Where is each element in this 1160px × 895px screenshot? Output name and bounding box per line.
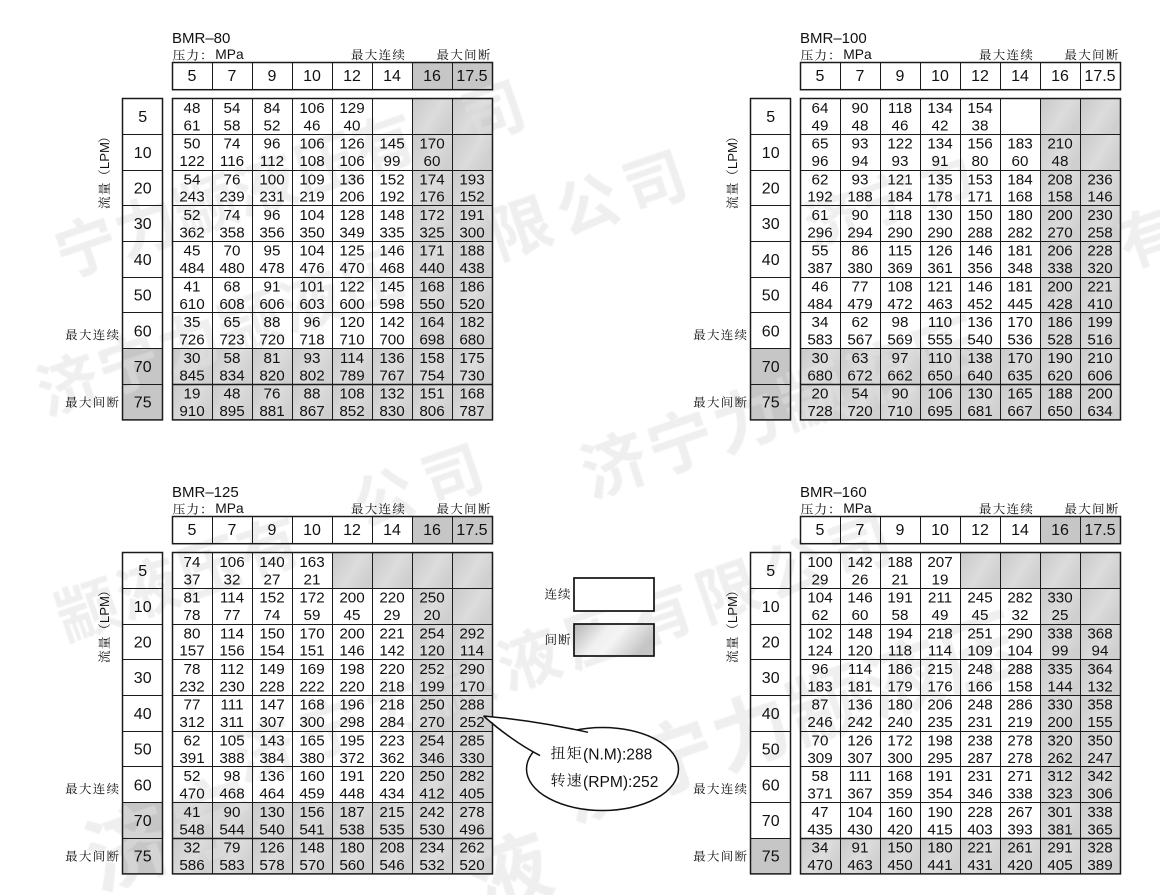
svg-text:540: 540 (259, 821, 284, 838)
svg-text:230: 230 (219, 678, 244, 695)
svg-text:288: 288 (459, 697, 484, 714)
svg-text:290: 290 (927, 224, 952, 241)
svg-text:62: 62 (852, 314, 869, 331)
svg-text:720: 720 (259, 332, 284, 349)
svg-text:222: 222 (299, 678, 324, 695)
svg-text:662: 662 (887, 367, 912, 384)
svg-text:211: 211 (928, 590, 952, 607)
svg-text:111: 111 (220, 697, 243, 714)
svg-text:10: 10 (762, 599, 780, 616)
svg-text:40: 40 (762, 706, 780, 723)
svg-text:168: 168 (887, 768, 912, 785)
svg-text:578: 578 (259, 857, 284, 874)
svg-text:158: 158 (1007, 678, 1032, 695)
svg-text:27: 27 (264, 571, 281, 588)
svg-text:754: 754 (419, 367, 444, 384)
svg-text:271: 271 (1007, 768, 1032, 785)
svg-text:359: 359 (887, 786, 912, 803)
svg-text:391: 391 (179, 750, 204, 767)
svg-text:468: 468 (219, 786, 244, 803)
svg-text:30: 30 (762, 670, 780, 687)
svg-text:606: 606 (1087, 367, 1112, 384)
svg-text:412: 412 (419, 786, 444, 803)
svg-text:14: 14 (383, 68, 401, 85)
svg-text:146: 146 (967, 243, 992, 260)
svg-text:105: 105 (219, 733, 244, 750)
svg-text:181: 181 (847, 678, 872, 695)
svg-text:63: 63 (852, 350, 869, 367)
svg-text:146: 146 (339, 643, 364, 660)
svg-text:180: 180 (1007, 207, 1032, 224)
svg-text:188: 188 (887, 554, 912, 571)
svg-text:484: 484 (807, 296, 832, 313)
svg-text:172: 172 (419, 207, 444, 224)
svg-text:16: 16 (1051, 68, 1069, 85)
svg-text:122: 122 (339, 278, 364, 295)
svg-text:100: 100 (807, 554, 832, 571)
svg-text:LPM: LPM (725, 142, 740, 169)
svg-text:231: 231 (967, 768, 992, 785)
svg-text:459: 459 (299, 786, 324, 803)
svg-text:234: 234 (419, 840, 444, 857)
svg-text:215: 215 (927, 661, 952, 678)
svg-text:528: 528 (1047, 332, 1072, 349)
svg-text:520: 520 (459, 857, 484, 874)
svg-text:61: 61 (812, 207, 829, 224)
svg-text:405: 405 (1047, 857, 1072, 874)
svg-text:200: 200 (1047, 278, 1072, 295)
svg-text:70: 70 (812, 733, 829, 750)
svg-text:90: 90 (892, 386, 909, 403)
svg-text:129: 129 (339, 100, 364, 117)
svg-text:149: 149 (259, 661, 284, 678)
svg-text:70: 70 (134, 813, 152, 830)
svg-text:30: 30 (762, 216, 780, 233)
svg-text:726: 726 (179, 332, 204, 349)
svg-text:538: 538 (339, 821, 364, 838)
svg-text:235: 235 (927, 714, 952, 731)
svg-text:218: 218 (379, 678, 404, 695)
svg-text:428: 428 (1047, 296, 1072, 313)
svg-text:30: 30 (134, 670, 152, 687)
svg-text:60: 60 (134, 323, 152, 340)
svg-text:560: 560 (339, 857, 364, 874)
svg-text:59: 59 (304, 607, 321, 624)
svg-text:288: 288 (1007, 661, 1032, 678)
svg-text:301: 301 (1047, 804, 1072, 821)
svg-text:50: 50 (134, 742, 152, 759)
svg-text:108: 108 (299, 153, 324, 170)
svg-text:178: 178 (927, 189, 952, 206)
svg-text:640: 640 (967, 367, 992, 384)
svg-text:544: 544 (219, 821, 244, 838)
svg-text:206: 206 (1047, 243, 1072, 260)
svg-text:7: 7 (856, 522, 865, 539)
svg-text:381: 381 (1047, 821, 1072, 838)
svg-text:307: 307 (847, 750, 872, 767)
svg-text:680: 680 (807, 367, 832, 384)
svg-text:245: 245 (967, 590, 992, 607)
svg-text:700: 700 (379, 332, 404, 349)
svg-text:163: 163 (299, 554, 324, 571)
svg-text:298: 298 (339, 714, 364, 731)
svg-text:81: 81 (184, 590, 201, 607)
svg-text:58: 58 (892, 607, 909, 624)
svg-text:32: 32 (1012, 607, 1029, 624)
svg-text:MPa: MPa (215, 47, 244, 62)
svg-text:5: 5 (188, 68, 197, 85)
svg-text:180: 180 (339, 840, 364, 857)
svg-text:34: 34 (812, 314, 829, 331)
svg-text:142: 142 (379, 314, 404, 331)
svg-text:182: 182 (459, 314, 484, 331)
svg-text:37: 37 (184, 571, 201, 588)
svg-text:367: 367 (847, 786, 872, 803)
svg-text:153: 153 (967, 171, 992, 188)
svg-text:362: 362 (179, 224, 204, 241)
svg-text:311: 311 (220, 714, 244, 731)
svg-text:114: 114 (928, 643, 952, 660)
svg-text:206: 206 (339, 189, 364, 206)
svg-text:106: 106 (299, 136, 324, 153)
svg-text:9: 9 (896, 68, 905, 85)
svg-text:41: 41 (184, 804, 201, 821)
svg-text:567: 567 (847, 332, 872, 349)
svg-text:536: 536 (1007, 332, 1032, 349)
svg-text:126: 126 (847, 733, 872, 750)
svg-text:136: 136 (259, 768, 284, 785)
svg-text:21: 21 (892, 571, 909, 588)
svg-text:7: 7 (228, 68, 237, 85)
svg-text:681: 681 (967, 403, 992, 420)
svg-text:164: 164 (419, 314, 444, 331)
svg-text:120: 120 (847, 643, 872, 660)
svg-text:93: 93 (892, 153, 909, 170)
svg-text:12: 12 (971, 68, 989, 85)
svg-text:52: 52 (184, 768, 201, 785)
svg-text:136: 136 (967, 314, 992, 331)
svg-text:48: 48 (224, 386, 241, 403)
svg-text:52: 52 (264, 117, 281, 134)
svg-text:126: 126 (339, 136, 364, 153)
svg-text:698: 698 (419, 332, 444, 349)
svg-text:358: 358 (1087, 697, 1112, 714)
svg-text:187: 187 (339, 804, 364, 821)
svg-text:74: 74 (224, 136, 241, 153)
svg-text:586: 586 (179, 857, 204, 874)
svg-text:168: 168 (1007, 189, 1032, 206)
svg-text:300: 300 (887, 750, 912, 767)
svg-text:5: 5 (766, 563, 775, 580)
svg-text:184: 184 (1007, 171, 1032, 188)
svg-text:49: 49 (812, 117, 829, 134)
svg-text:12: 12 (343, 68, 361, 85)
svg-text:52: 52 (184, 207, 201, 224)
svg-text:104: 104 (299, 207, 324, 224)
svg-text:372: 372 (339, 750, 364, 767)
svg-text:569: 569 (887, 332, 912, 349)
svg-text:330: 330 (1047, 590, 1072, 607)
svg-text:200: 200 (339, 625, 364, 642)
svg-text:166: 166 (967, 678, 992, 695)
svg-text:60: 60 (424, 153, 441, 170)
svg-text:132: 132 (1087, 678, 1112, 695)
svg-text:10: 10 (931, 68, 949, 85)
svg-text:126: 126 (927, 243, 952, 260)
svg-text:114: 114 (460, 643, 484, 660)
svg-text:181: 181 (1007, 243, 1032, 260)
svg-text:335: 335 (379, 224, 404, 241)
svg-text:252: 252 (459, 714, 484, 731)
svg-text:240: 240 (887, 714, 912, 731)
svg-text:20: 20 (762, 181, 780, 198)
svg-text:181: 181 (1007, 278, 1032, 295)
svg-text:555: 555 (927, 332, 952, 349)
svg-text:267: 267 (1007, 804, 1032, 821)
svg-text:96: 96 (264, 207, 281, 224)
svg-text:330: 330 (1047, 697, 1072, 714)
svg-text:380: 380 (299, 750, 324, 767)
svg-text:118: 118 (888, 100, 912, 117)
svg-text:448: 448 (339, 786, 364, 803)
svg-text:122: 122 (887, 136, 912, 153)
svg-text:170: 170 (419, 136, 444, 153)
svg-text:96: 96 (812, 661, 829, 678)
svg-text:767: 767 (379, 367, 404, 384)
svg-text:5: 5 (138, 563, 147, 580)
svg-text:252: 252 (419, 661, 444, 678)
svg-text:93: 93 (852, 136, 869, 153)
svg-text:199: 199 (419, 678, 444, 695)
svg-text:96: 96 (812, 153, 829, 170)
svg-text:74: 74 (224, 207, 241, 224)
svg-text:219: 219 (299, 189, 324, 206)
svg-text:60: 60 (762, 777, 780, 794)
svg-text:312: 312 (1047, 768, 1072, 785)
svg-text:169: 169 (299, 661, 324, 678)
svg-text:156: 156 (219, 643, 244, 660)
svg-text:231: 231 (259, 189, 284, 206)
svg-text:70: 70 (134, 359, 152, 376)
svg-text:102: 102 (807, 625, 832, 642)
svg-text:710: 710 (339, 332, 364, 349)
svg-text:723: 723 (219, 332, 244, 349)
svg-text:420: 420 (1007, 857, 1032, 874)
svg-text:77: 77 (852, 278, 869, 295)
svg-text:598: 598 (379, 296, 404, 313)
svg-text:48: 48 (852, 117, 869, 134)
svg-text:434: 434 (379, 786, 404, 803)
svg-text:323: 323 (1047, 786, 1072, 803)
svg-text:151: 151 (299, 643, 324, 660)
svg-text:496: 496 (459, 821, 484, 838)
svg-text:610: 610 (179, 296, 204, 313)
svg-text:151: 151 (419, 386, 444, 403)
svg-text:130: 130 (259, 804, 284, 821)
svg-text:356: 356 (967, 260, 992, 277)
svg-text:142: 142 (847, 554, 872, 571)
svg-text:221: 221 (379, 625, 404, 642)
svg-text:236: 236 (1087, 171, 1112, 188)
svg-text:186: 186 (459, 278, 484, 295)
svg-text:BMR–100: BMR–100 (800, 30, 867, 47)
svg-text:58: 58 (224, 117, 241, 134)
svg-text:261: 261 (1007, 840, 1032, 857)
svg-text:288: 288 (967, 224, 992, 241)
svg-text:174: 174 (419, 171, 444, 188)
svg-text:346: 346 (967, 786, 992, 803)
svg-text:91: 91 (264, 278, 281, 295)
svg-text:146: 146 (379, 243, 404, 260)
svg-text:307: 307 (259, 714, 284, 731)
svg-text:200: 200 (1047, 207, 1072, 224)
svg-text:720: 720 (847, 403, 872, 420)
svg-text:62: 62 (812, 171, 829, 188)
svg-text:852: 852 (339, 403, 364, 420)
svg-text:60: 60 (134, 777, 152, 794)
svg-text:150: 150 (967, 207, 992, 224)
svg-text:47: 47 (812, 804, 829, 821)
svg-text:130: 130 (927, 207, 952, 224)
svg-text:435: 435 (807, 821, 832, 838)
svg-text:90: 90 (852, 207, 869, 224)
svg-text:114: 114 (220, 625, 244, 642)
svg-text:270: 270 (1047, 224, 1072, 241)
svg-text:7: 7 (856, 68, 865, 85)
svg-text:516: 516 (1087, 332, 1112, 349)
svg-text:176: 176 (419, 189, 444, 206)
svg-text:295: 295 (927, 750, 952, 767)
svg-text:867: 867 (299, 403, 324, 420)
svg-text:895: 895 (219, 403, 244, 420)
svg-text:650: 650 (927, 367, 952, 384)
svg-text:881: 881 (259, 403, 284, 420)
svg-text:109: 109 (967, 643, 992, 660)
svg-text:14: 14 (1011, 68, 1029, 85)
svg-text:5: 5 (138, 109, 147, 126)
svg-text:254: 254 (419, 625, 444, 642)
svg-text:78: 78 (184, 661, 201, 678)
svg-text:58: 58 (812, 768, 829, 785)
svg-text:48: 48 (184, 100, 201, 117)
svg-text:220: 220 (379, 590, 404, 607)
svg-text:239: 239 (219, 189, 244, 206)
svg-text:62: 62 (812, 607, 829, 624)
svg-text:114: 114 (220, 590, 244, 607)
svg-text:210: 210 (1087, 350, 1112, 367)
svg-text:160: 160 (299, 768, 324, 785)
svg-text:160: 160 (887, 804, 912, 821)
svg-text:148: 148 (379, 207, 404, 224)
svg-text:70: 70 (762, 359, 780, 376)
svg-text:125: 125 (339, 243, 364, 260)
svg-text:180: 180 (927, 840, 952, 857)
svg-text:104: 104 (1007, 643, 1032, 660)
svg-text:338: 338 (1047, 625, 1072, 642)
svg-text:19: 19 (932, 571, 949, 588)
svg-text:250: 250 (419, 768, 444, 785)
svg-text:77: 77 (184, 697, 201, 714)
svg-text:290: 290 (1007, 625, 1032, 642)
svg-text:55: 55 (812, 243, 829, 260)
svg-text:190: 190 (927, 804, 952, 821)
svg-text:183: 183 (1007, 136, 1032, 153)
svg-text:135: 135 (927, 171, 952, 188)
svg-text:106: 106 (299, 100, 324, 117)
svg-text:362: 362 (379, 750, 404, 767)
svg-text:17.5: 17.5 (1084, 68, 1115, 85)
svg-text:10: 10 (931, 522, 949, 539)
svg-text:250: 250 (419, 590, 444, 607)
svg-text:91: 91 (932, 153, 949, 170)
svg-text:50: 50 (184, 136, 201, 153)
svg-text:472: 472 (887, 296, 912, 313)
svg-text:608: 608 (219, 296, 244, 313)
svg-text:550: 550 (419, 296, 444, 313)
svg-text:190: 190 (1047, 350, 1072, 367)
svg-text:93: 93 (304, 350, 321, 367)
svg-text:136: 136 (379, 350, 404, 367)
svg-text:440: 440 (419, 260, 444, 277)
svg-text:282: 282 (1007, 224, 1032, 241)
svg-text:104: 104 (299, 243, 324, 260)
svg-text:634: 634 (1087, 403, 1112, 420)
svg-text:667: 667 (1007, 403, 1032, 420)
svg-text:7: 7 (228, 522, 237, 539)
svg-text:210: 210 (1047, 136, 1072, 153)
svg-text:115: 115 (888, 243, 912, 260)
svg-text:200: 200 (1087, 386, 1112, 403)
svg-text:520: 520 (459, 296, 484, 313)
svg-text:93: 93 (852, 171, 869, 188)
svg-text:155: 155 (1087, 714, 1112, 731)
svg-text:12: 12 (971, 522, 989, 539)
svg-text:258: 258 (1087, 224, 1112, 241)
svg-text:787: 787 (459, 403, 484, 420)
svg-text:196: 196 (339, 697, 364, 714)
svg-text:603: 603 (299, 296, 324, 313)
svg-text:248: 248 (967, 661, 992, 678)
svg-text:365: 365 (1087, 821, 1112, 838)
svg-text:145: 145 (379, 278, 404, 295)
svg-text:223: 223 (379, 733, 404, 750)
svg-text:112: 112 (220, 661, 244, 678)
svg-text:34: 34 (812, 840, 829, 857)
svg-text:118: 118 (888, 207, 912, 224)
svg-text:45: 45 (972, 607, 989, 624)
svg-text:463: 463 (847, 857, 872, 874)
svg-text:65: 65 (224, 314, 241, 331)
svg-text:156: 156 (967, 136, 992, 153)
svg-text:470: 470 (807, 857, 832, 874)
svg-text:356: 356 (259, 224, 284, 241)
svg-text:445: 445 (1007, 296, 1032, 313)
svg-text:170: 170 (1007, 314, 1032, 331)
svg-text:728: 728 (807, 403, 832, 420)
svg-text:54: 54 (852, 386, 869, 403)
svg-text:208: 208 (1047, 171, 1072, 188)
svg-text:546: 546 (379, 857, 404, 874)
svg-text:104: 104 (807, 590, 832, 607)
svg-text:BMR–125: BMR–125 (172, 484, 239, 501)
svg-text:45: 45 (184, 243, 201, 260)
svg-text:606: 606 (259, 296, 284, 313)
svg-text:60: 60 (1012, 153, 1029, 170)
svg-text:84: 84 (264, 100, 281, 117)
svg-text:32: 32 (224, 571, 241, 588)
svg-text:294: 294 (847, 224, 872, 241)
svg-text:246: 246 (807, 714, 832, 731)
